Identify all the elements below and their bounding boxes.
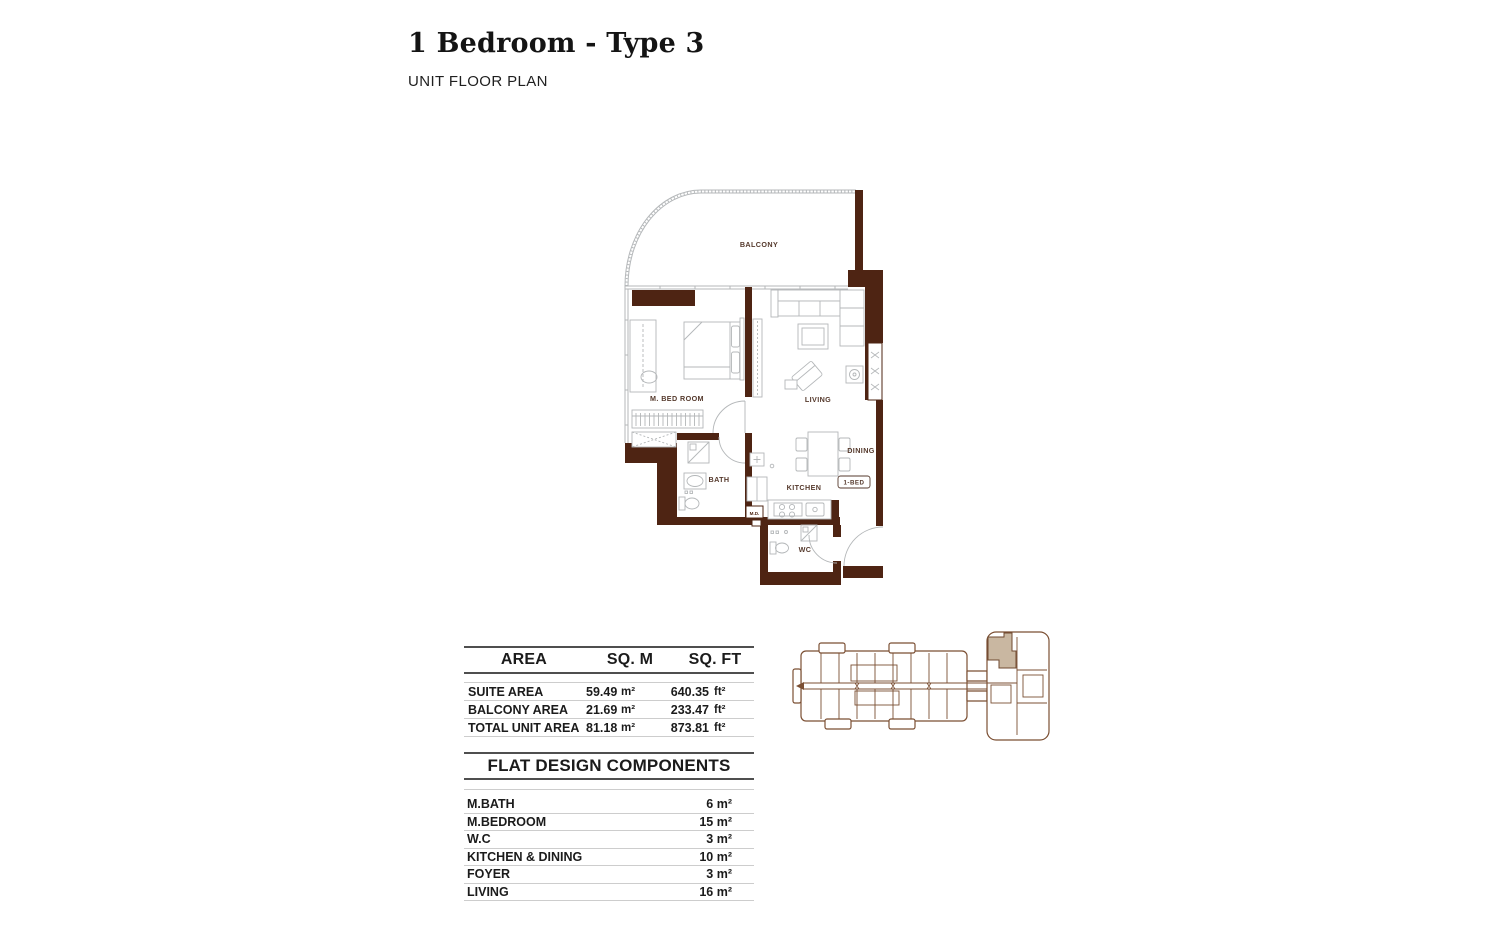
component-label: LIVING: [464, 885, 699, 899]
divider: [464, 736, 754, 737]
row-label: SUITE AREA: [464, 685, 586, 699]
table-row: W.C 3 m²: [464, 831, 754, 848]
col-header-sqft: SQ. FT: [676, 651, 754, 669]
shaft-recess: [868, 343, 882, 400]
row-sqft: 640.35: [640, 685, 709, 699]
table-row: M.BATH 6 m²: [464, 796, 754, 813]
component-label: KITCHEN & DINING: [464, 850, 699, 864]
component-value: 3 m²: [706, 832, 754, 846]
bedroom-furniture: [630, 318, 744, 447]
wc-label: WC: [799, 545, 812, 554]
living-furniture: [753, 290, 864, 397]
page-subtitle: UNIT FLOOR PLAN: [408, 73, 548, 90]
row-sqft: 233.47: [640, 703, 709, 717]
tables: AREA SQ. M SQ. FT SUITE AREA 59.49 m² 64…: [464, 646, 754, 901]
row-sqm: 81.18: [586, 721, 616, 735]
components-table-title: FLAT DESIGN COMPONENTS: [464, 754, 754, 778]
component-label: FOYER: [464, 867, 706, 881]
key-plan-svg: [791, 625, 1055, 747]
components-table: FLAT DESIGN COMPONENTS M.BATH 6 m² M.BED…: [464, 752, 754, 901]
table-row: KITCHEN & DINING 10 m²: [464, 849, 754, 866]
unit-type-badge: 1-BED: [838, 476, 870, 488]
table-row: SUITE AREA 59.49 m² 640.35 ft²: [464, 683, 754, 700]
table-row: TOTAL UNIT AREA 81.18 m² 873.81 ft²: [464, 719, 754, 736]
floor-plan-svg: M.D. BALCONY M. BED ROOM LIVING DINING K…: [600, 170, 920, 600]
component-label: W.C: [464, 832, 706, 846]
row-sqm-unit: m²: [616, 704, 640, 716]
bath-label: BATH: [708, 475, 729, 484]
table-row: LIVING 16 m²: [464, 884, 754, 901]
page-title: 1 Bedroom - Type 3: [408, 28, 705, 59]
row-sqft-unit: ft²: [709, 722, 733, 734]
dining-furniture: [796, 432, 850, 476]
balcony-label: BALCONY: [740, 240, 778, 249]
balcony-railing: [625, 190, 856, 286]
bedroom-label: M. BED ROOM: [650, 394, 704, 403]
row-sqm: 21.69: [586, 703, 616, 717]
page: 1 Bedroom - Type 3 UNIT FLOOR PLAN: [0, 0, 1500, 941]
component-value: 15 m²: [699, 815, 754, 829]
area-table: AREA SQ. M SQ. FT SUITE AREA 59.49 m² 64…: [464, 646, 754, 737]
row-sqft-unit: ft²: [709, 686, 733, 698]
component-value: 10 m²: [699, 850, 754, 864]
table-row: BALCONY AREA 21.69 m² 233.47 ft²: [464, 701, 754, 718]
key-plan: [791, 625, 1055, 747]
area-table-header: AREA SQ. M SQ. FT: [464, 648, 754, 672]
divider: [464, 789, 754, 790]
component-value: 16 m²: [699, 885, 754, 899]
divider: [464, 900, 754, 901]
col-header-sqm: SQ. M: [584, 651, 676, 669]
row-sqm-unit: m²: [616, 686, 640, 698]
unit-floor-plan: M.D. BALCONY M. BED ROOM LIVING DINING K…: [600, 170, 920, 600]
table-row: FOYER 3 m²: [464, 866, 754, 883]
row-sqm-unit: m²: [616, 722, 640, 734]
md-label: M.D.: [750, 511, 760, 516]
divider: [464, 778, 754, 780]
component-label: M.BEDROOM: [464, 815, 699, 829]
row-sqft-unit: ft²: [709, 704, 733, 716]
bath-fixtures: [679, 442, 709, 510]
row-label: TOTAL UNIT AREA: [464, 721, 586, 735]
component-label: M.BATH: [464, 797, 706, 811]
divider: [464, 672, 754, 674]
unit-type-badge-label: 1-BED: [843, 480, 864, 487]
col-header-area: AREA: [464, 651, 584, 669]
component-value: 6 m²: [706, 797, 754, 811]
component-value: 3 m²: [706, 867, 754, 881]
living-label: LIVING: [805, 395, 831, 404]
row-sqm: 59.49: [586, 685, 616, 699]
table-row: M.BEDROOM 15 m²: [464, 814, 754, 831]
dining-label: DINING: [847, 446, 875, 455]
row-sqft: 873.81: [640, 721, 709, 735]
row-label: BALCONY AREA: [464, 703, 586, 717]
kitchen-label: KITCHEN: [787, 483, 822, 492]
